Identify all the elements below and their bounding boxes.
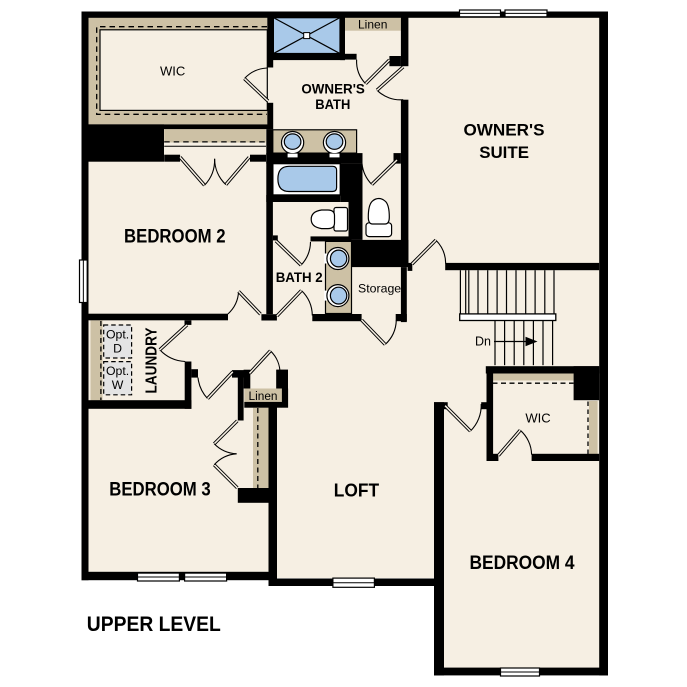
svg-text:BEDROOM 3: BEDROOM 3 [109,479,211,500]
svg-text:WIC: WIC [525,411,550,426]
svg-text:Opt.: Opt. [106,328,129,342]
svg-text:Linen: Linen [358,17,387,31]
svg-text:BEDROOM 2: BEDROOM 2 [124,227,226,248]
svg-text:LOFT: LOFT [334,480,379,500]
svg-text:Linen: Linen [249,389,278,403]
svg-text:UPPER LEVEL: UPPER LEVEL [87,613,221,636]
svg-text:LAUNDRY: LAUNDRY [144,327,161,393]
svg-text:WIC: WIC [160,64,185,79]
svg-text:W: W [112,378,124,392]
svg-text:SUITE: SUITE [479,143,529,162]
svg-text:OWNER'S: OWNER'S [464,121,545,140]
svg-text:BATH: BATH [315,97,350,112]
svg-text:Storage: Storage [358,282,401,296]
svg-text:BATH 2: BATH 2 [276,269,323,285]
svg-text:Opt.: Opt. [106,364,129,378]
svg-text:BEDROOM 4: BEDROOM 4 [470,553,575,574]
svg-text:Dn: Dn [475,335,491,349]
svg-text:D: D [113,342,122,356]
svg-text:OWNER'S: OWNER'S [301,82,365,97]
